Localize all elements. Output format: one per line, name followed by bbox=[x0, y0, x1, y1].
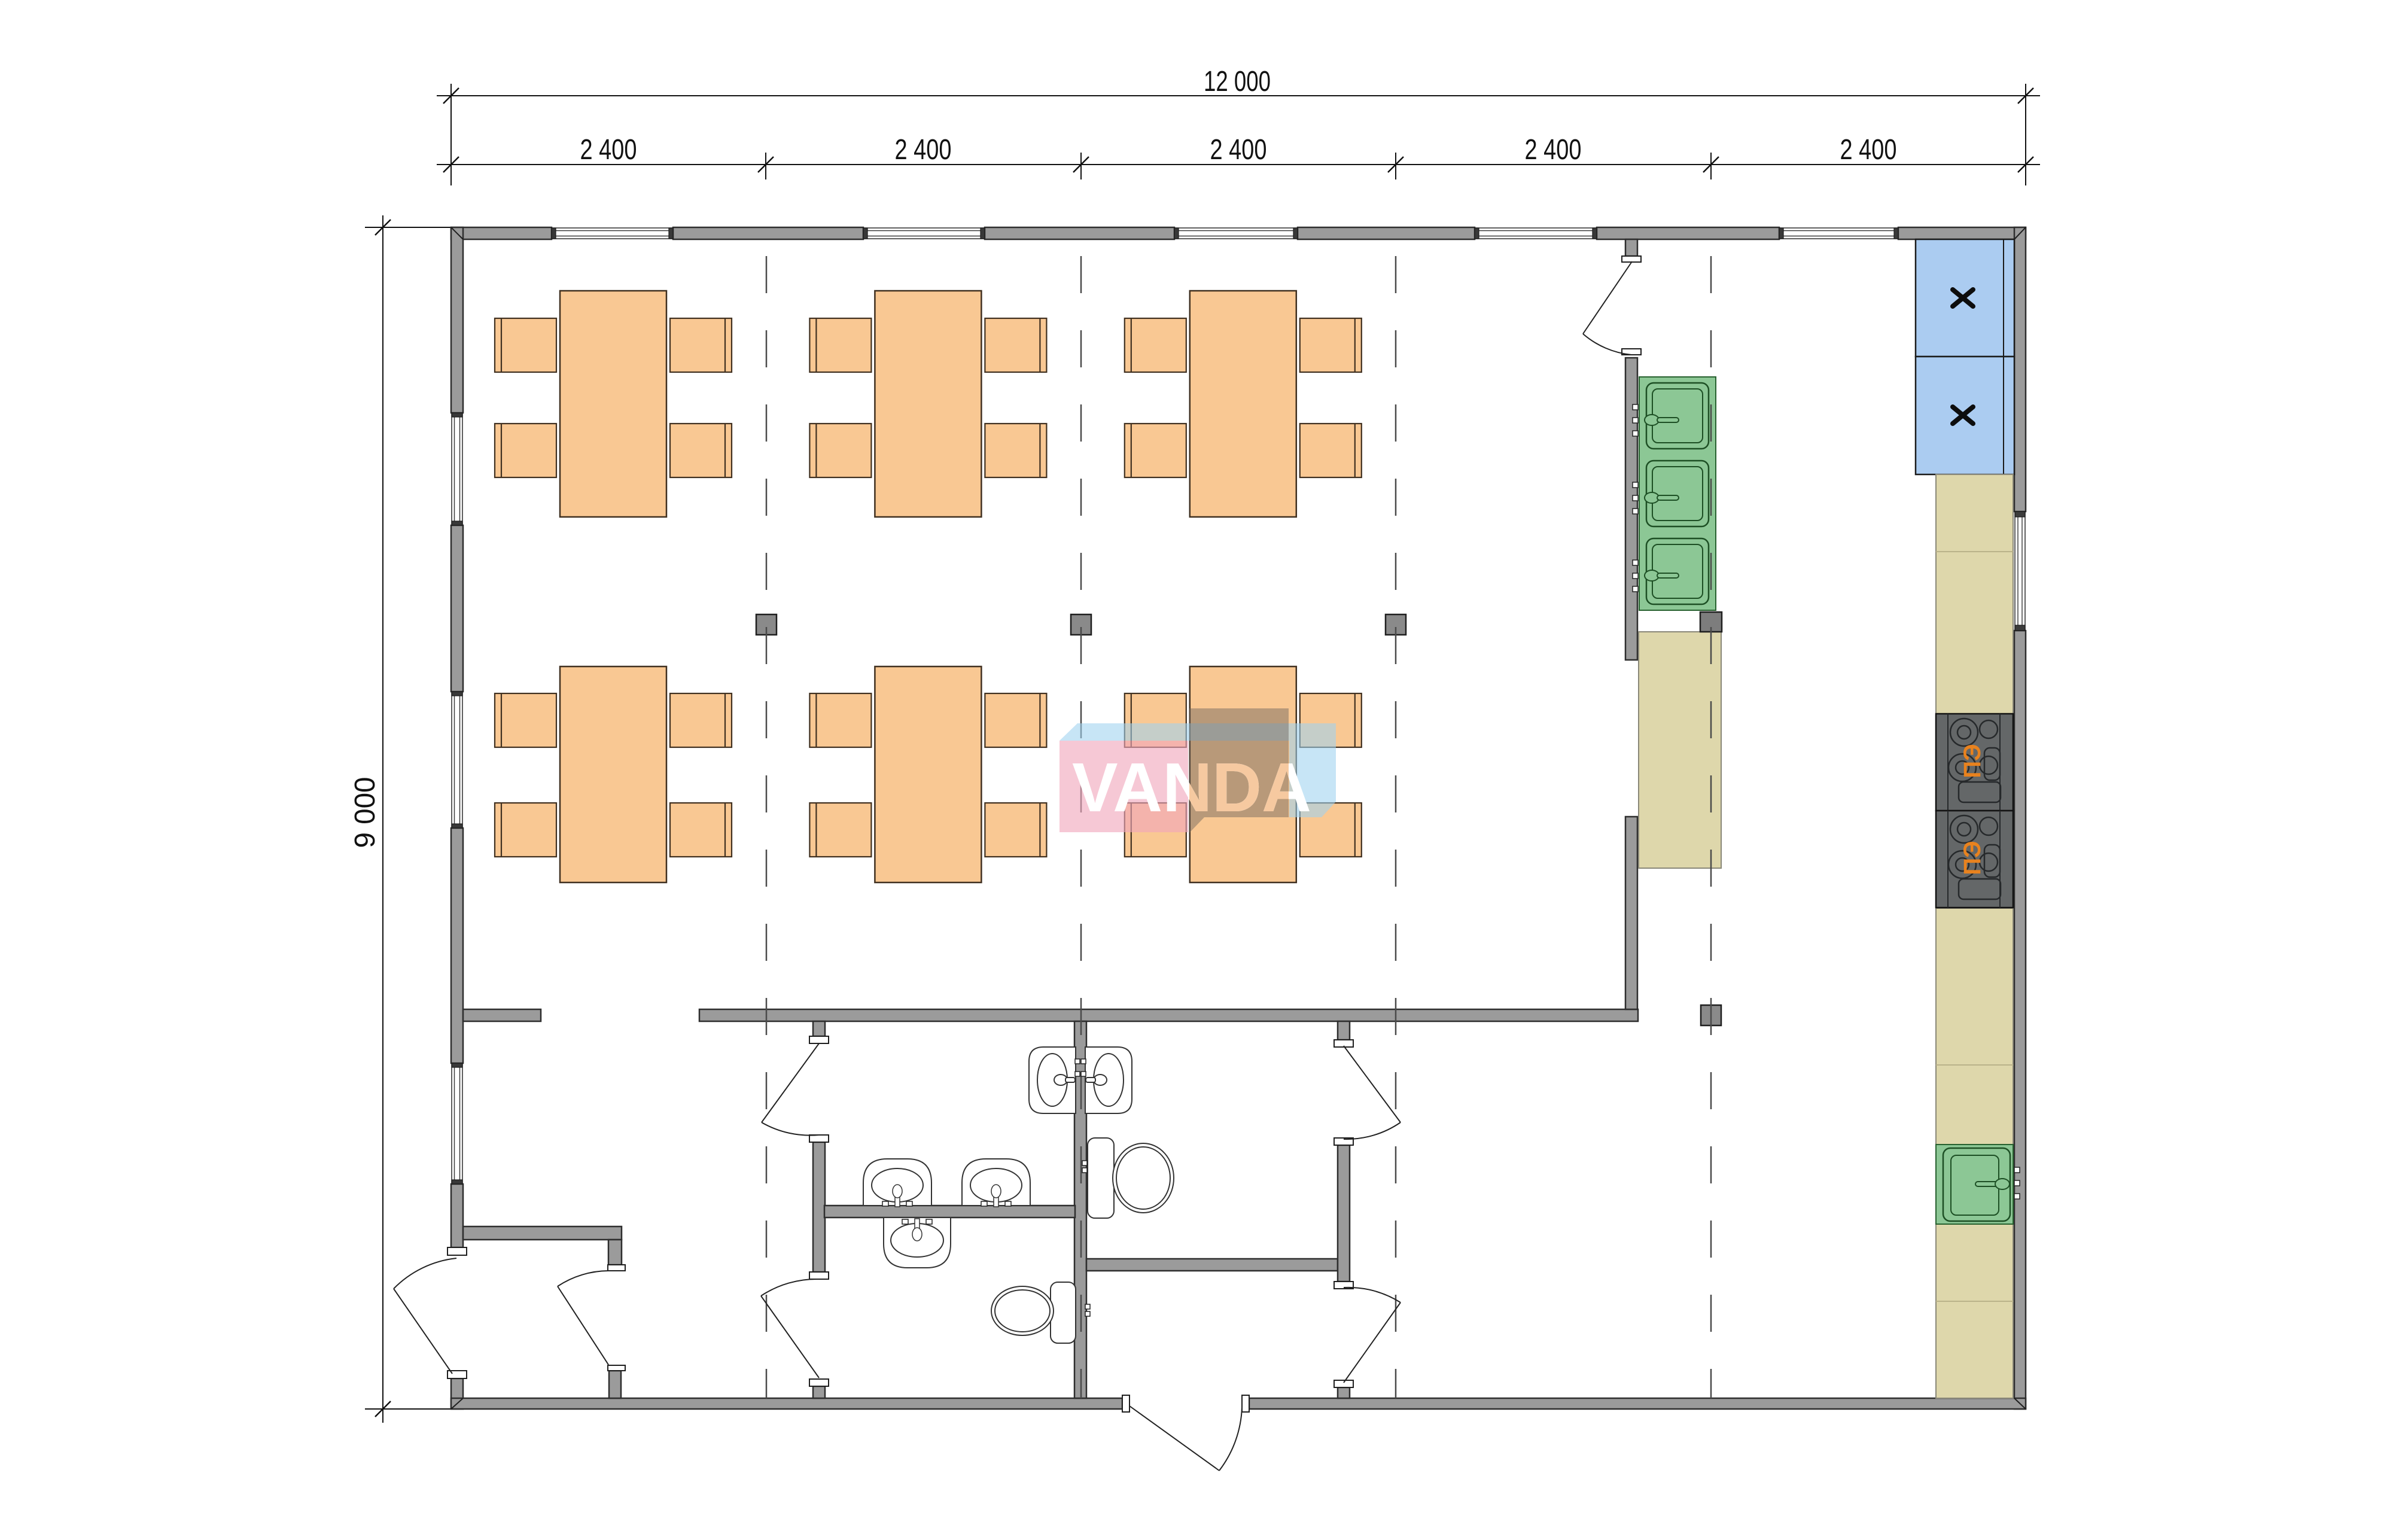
svg-text:ПЭ: ПЭ bbox=[1959, 744, 1986, 778]
svg-text:2 400: 2 400 bbox=[580, 134, 637, 166]
svg-text:2 400: 2 400 bbox=[1840, 134, 1897, 166]
svg-text:ПЭ: ПЭ bbox=[1959, 841, 1986, 875]
svg-text:2 400: 2 400 bbox=[1210, 134, 1267, 166]
svg-text:2 400: 2 400 bbox=[1525, 134, 1582, 166]
svg-text:2 400: 2 400 bbox=[895, 134, 952, 166]
svg-text:12 000: 12 000 bbox=[1204, 66, 1271, 98]
svg-text:9 000: 9 000 bbox=[349, 777, 381, 848]
